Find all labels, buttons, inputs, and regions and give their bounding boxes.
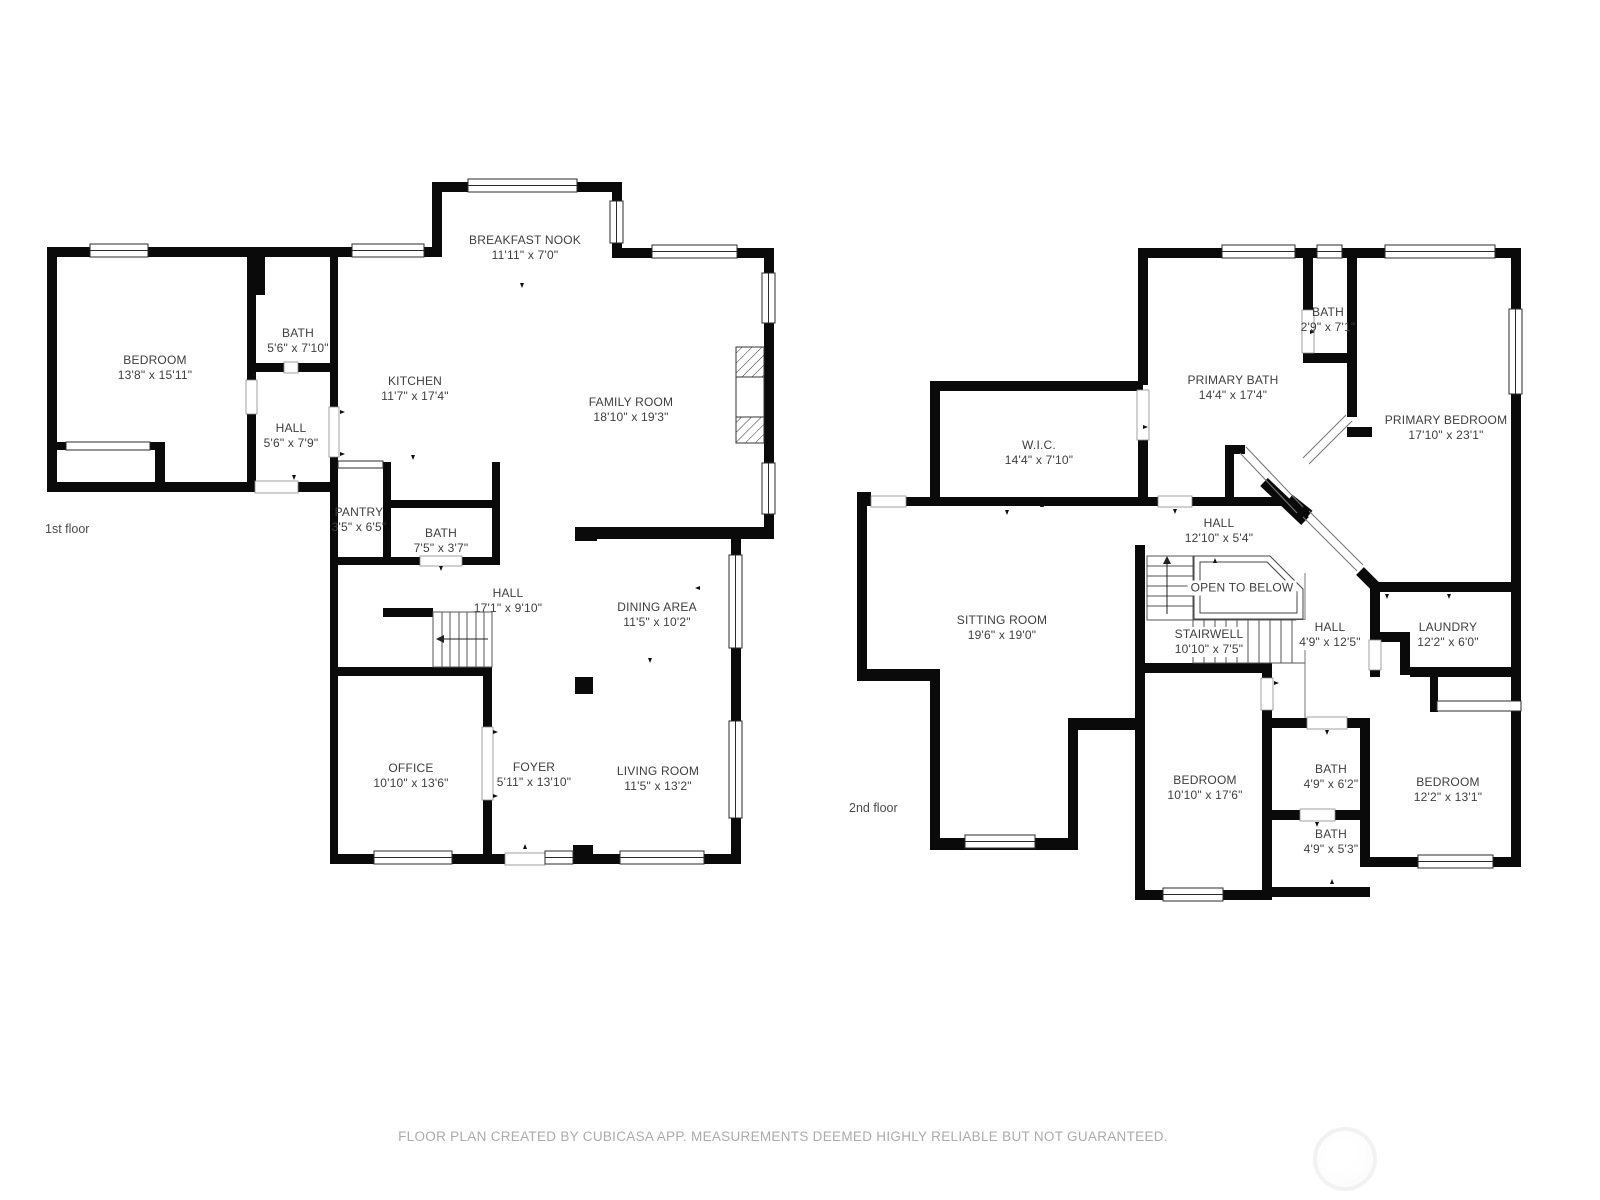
room-dimensions: 11'7" x 17'4" [381, 389, 449, 404]
room-label: BEDROOM12'2" x 13'1" [1414, 775, 1482, 805]
room-label: PANTRY3'5" x 6'5" [332, 505, 387, 535]
cubicasa-watermark-circle [1313, 1127, 1377, 1191]
room-name: W.I.C. [1005, 438, 1073, 453]
room-dimensions: 4'9" x 12'5" [1299, 635, 1361, 650]
fireplace [736, 347, 764, 443]
room-label: KITCHEN11'7" x 17'4" [381, 374, 449, 404]
room-label: LAUNDRY12'2" x 6'0" [1417, 620, 1479, 650]
room-name: BATH [414, 526, 469, 541]
room-dimensions: 4'9" x 5'3" [1304, 842, 1359, 857]
room-dimensions: 3'5" x 6'5" [332, 520, 387, 535]
room-dimensions: 12'10" x 5'4" [1185, 531, 1253, 546]
room-name: BATH [267, 326, 329, 341]
room-label: BATH4'9" x 5'3" [1304, 827, 1359, 857]
room-name: LIVING ROOM [617, 764, 699, 779]
room-dimensions: 7'5" x 3'7" [414, 541, 469, 556]
room-label: BATH5'6" x 7'10" [267, 326, 329, 356]
room-name: BEDROOM [1167, 773, 1242, 788]
room-name: BATH [1304, 827, 1359, 842]
room-name: DINING AREA [617, 600, 697, 615]
room-dimensions: 11'5" x 13'2" [617, 779, 699, 794]
room-label: HALL4'9" x 12'5" [1296, 620, 1364, 650]
room-name: FOYER [497, 760, 571, 775]
room-name: OPEN TO BELOW [1191, 581, 1294, 596]
floor-caption: 2nd floor [849, 801, 898, 815]
room-name: BATH [1301, 305, 1356, 320]
room-name: LAUNDRY [1417, 620, 1479, 635]
first-floor-stairs [433, 612, 492, 667]
room-dimensions: 12'2" x 6'0" [1417, 635, 1479, 650]
room-dimensions: 13'8" x 15'11" [118, 368, 192, 383]
room-label: SITTING ROOM19'6" x 19'0" [957, 613, 1047, 643]
room-dimensions: 11'5" x 10'2" [617, 615, 697, 630]
room-name: STAIRWELL [1175, 627, 1244, 642]
room-dimensions: 11'11" x 7'0" [469, 248, 581, 263]
room-dimensions: 4'9" x 6'2" [1304, 777, 1359, 792]
floor-caption: 1st floor [45, 522, 89, 536]
room-dimensions: 5'6" x 7'10" [267, 341, 329, 356]
floorplan-page: BEDROOM13'8" x 15'11"BATH5'6" x 7'10"HAL… [0, 0, 1600, 1200]
room-name: KITCHEN [381, 374, 449, 389]
room-dimensions: 14'4" x 7'10" [1005, 453, 1073, 468]
room-label: BATH4'9" x 6'2" [1304, 762, 1359, 792]
second-floor-diagonal-doors [1240, 415, 1363, 571]
room-name: BATH [1304, 762, 1359, 777]
room-label: DINING AREA11'5" x 10'2" [617, 600, 697, 630]
floorplan-drawing [0, 0, 1600, 1200]
room-dimensions: 10'10" x 17'6" [1167, 788, 1242, 803]
room-name: OFFICE [373, 761, 448, 776]
room-name: HALL [1185, 516, 1253, 531]
room-label: HALL17'1" x 9'10" [474, 586, 542, 616]
room-label: FAMILY ROOM18'10" x 19'3" [589, 395, 673, 425]
room-label: PRIMARY BEDROOM17'10" x 23'1" [1385, 413, 1508, 443]
room-name: BEDROOM [118, 353, 192, 368]
room-label: HALL5'6" x 7'9" [264, 421, 319, 451]
room-dimensions: 10'10" x 7'5" [1175, 642, 1244, 657]
room-dimensions: 12'2" x 13'1" [1414, 790, 1482, 805]
room-label: PRIMARY BATH14'4" x 17'4" [1187, 373, 1278, 403]
room-label: BEDROOM13'8" x 15'11" [118, 353, 192, 383]
room-label: BREAKFAST NOOK11'11" x 7'0" [469, 233, 581, 263]
room-label: FOYER5'11" x 13'10" [497, 760, 571, 790]
room-dimensions: 5'6" x 7'9" [264, 436, 319, 451]
room-dimensions: 10'10" x 13'6" [373, 776, 448, 791]
room-name: PRIMARY BATH [1187, 373, 1278, 388]
room-dimensions: 14'4" x 17'4" [1187, 388, 1278, 403]
room-label: OFFICE10'10" x 13'6" [373, 761, 448, 791]
room-name: BREAKFAST NOOK [469, 233, 581, 248]
room-dimensions: 18'10" x 19'3" [589, 410, 673, 425]
room-label: BATH2'9" x 7'1" [1301, 305, 1356, 335]
room-name: HALL [474, 586, 542, 601]
room-dimensions: 5'11" x 13'10" [497, 775, 571, 790]
room-label: LIVING ROOM11'5" x 13'2" [617, 764, 699, 794]
room-label: HALL12'10" x 5'4" [1185, 516, 1253, 546]
room-name: SITTING ROOM [957, 613, 1047, 628]
room-dimensions: 19'6" x 19'0" [957, 628, 1047, 643]
room-name: HALL [1299, 620, 1361, 635]
room-dimensions: 17'1" x 9'10" [474, 601, 542, 616]
room-label: BEDROOM10'10" x 17'6" [1167, 773, 1242, 803]
room-name: HALL [264, 421, 319, 436]
room-label: OPEN TO BELOW [1188, 581, 1297, 596]
room-label: W.I.C.14'4" x 7'10" [1005, 438, 1073, 468]
room-label: BATH7'5" x 3'7" [414, 526, 469, 556]
room-name: PANTRY [332, 505, 387, 520]
room-label: STAIRWELL10'10" x 7'5" [1172, 627, 1247, 657]
room-name: BEDROOM [1414, 775, 1482, 790]
room-dimensions: 2'9" x 7'1" [1301, 320, 1356, 335]
room-name: PRIMARY BEDROOM [1385, 413, 1508, 428]
room-name: FAMILY ROOM [589, 395, 673, 410]
room-dimensions: 17'10" x 23'1" [1385, 428, 1508, 443]
